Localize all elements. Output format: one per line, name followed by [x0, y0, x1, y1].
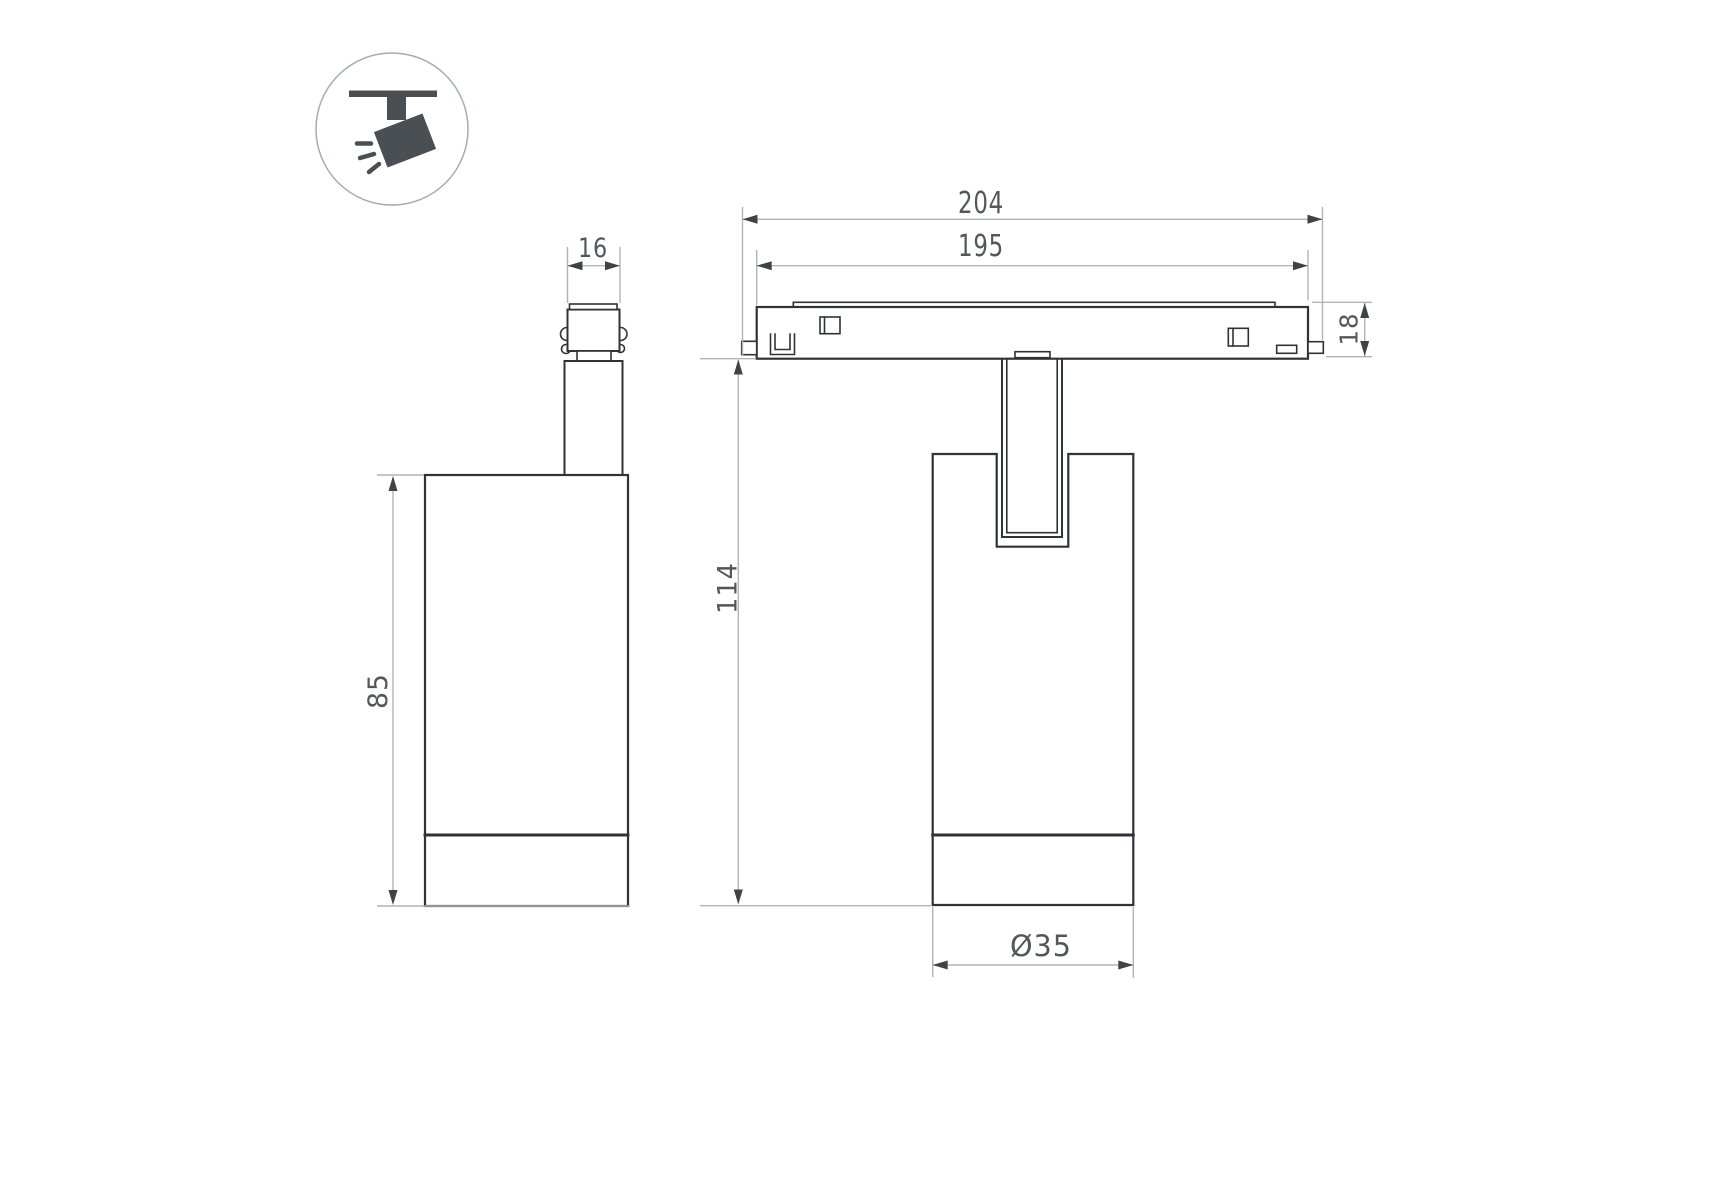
track-contact-left: [820, 317, 840, 334]
dimension-drawing: 16 85: [0, 0, 1715, 1200]
arm-pivot-collar: [1015, 352, 1050, 358]
icon-stem: [387, 96, 406, 120]
dim-label-o35: Ø35: [1010, 929, 1072, 963]
drawing-canvas: 16 85: [0, 0, 1715, 1200]
adapter-neck: [577, 351, 611, 361]
dim-label-195: 195: [958, 229, 1004, 264]
dim-track-length-inner: 195: [757, 229, 1308, 305]
track-end-tab-left: [742, 341, 757, 354]
track-end-tab-right: [1308, 342, 1323, 354]
track-contact-right: [1228, 328, 1248, 346]
track-top-strip: [793, 302, 1275, 306]
front-view: [742, 302, 1324, 905]
dim-label-204: 204: [958, 186, 1004, 221]
dim-label-85: 85: [363, 673, 394, 709]
track-adapter: [568, 310, 620, 352]
spotlight-arm-front: [1002, 358, 1062, 538]
dim-adapter-width: 16: [568, 233, 621, 303]
dim-label-16: 16: [578, 233, 608, 264]
dim-body-diameter: Ø35: [933, 907, 1134, 978]
dim-fixture-height: 114: [700, 359, 931, 906]
dim-label-18: 18: [1335, 313, 1364, 346]
side-view: [425, 304, 628, 906]
spotlight-arm: [565, 361, 623, 475]
track-contact-flat: [1277, 345, 1297, 353]
adapter-top-plate: [570, 304, 618, 310]
spotlight-body: [425, 475, 628, 906]
dim-label-114: 114: [713, 562, 744, 614]
spotlight-icon: [316, 53, 468, 205]
